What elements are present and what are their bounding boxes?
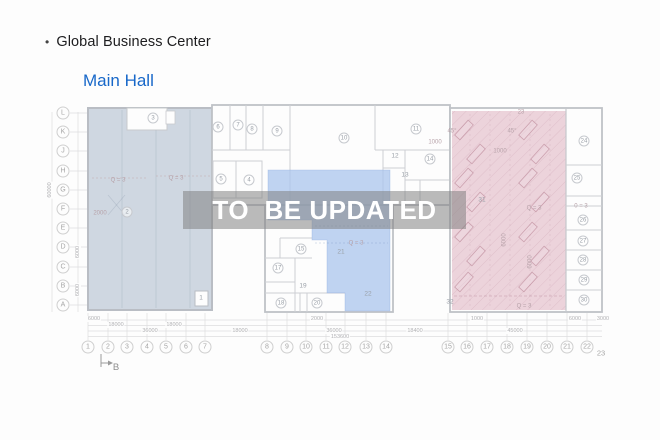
watermark-banner: TO BE UPDATED [183, 191, 466, 229]
section-marker-b [101, 354, 113, 367]
right-building [450, 108, 602, 312]
page: • Global Business Center Main Hall [0, 0, 660, 440]
